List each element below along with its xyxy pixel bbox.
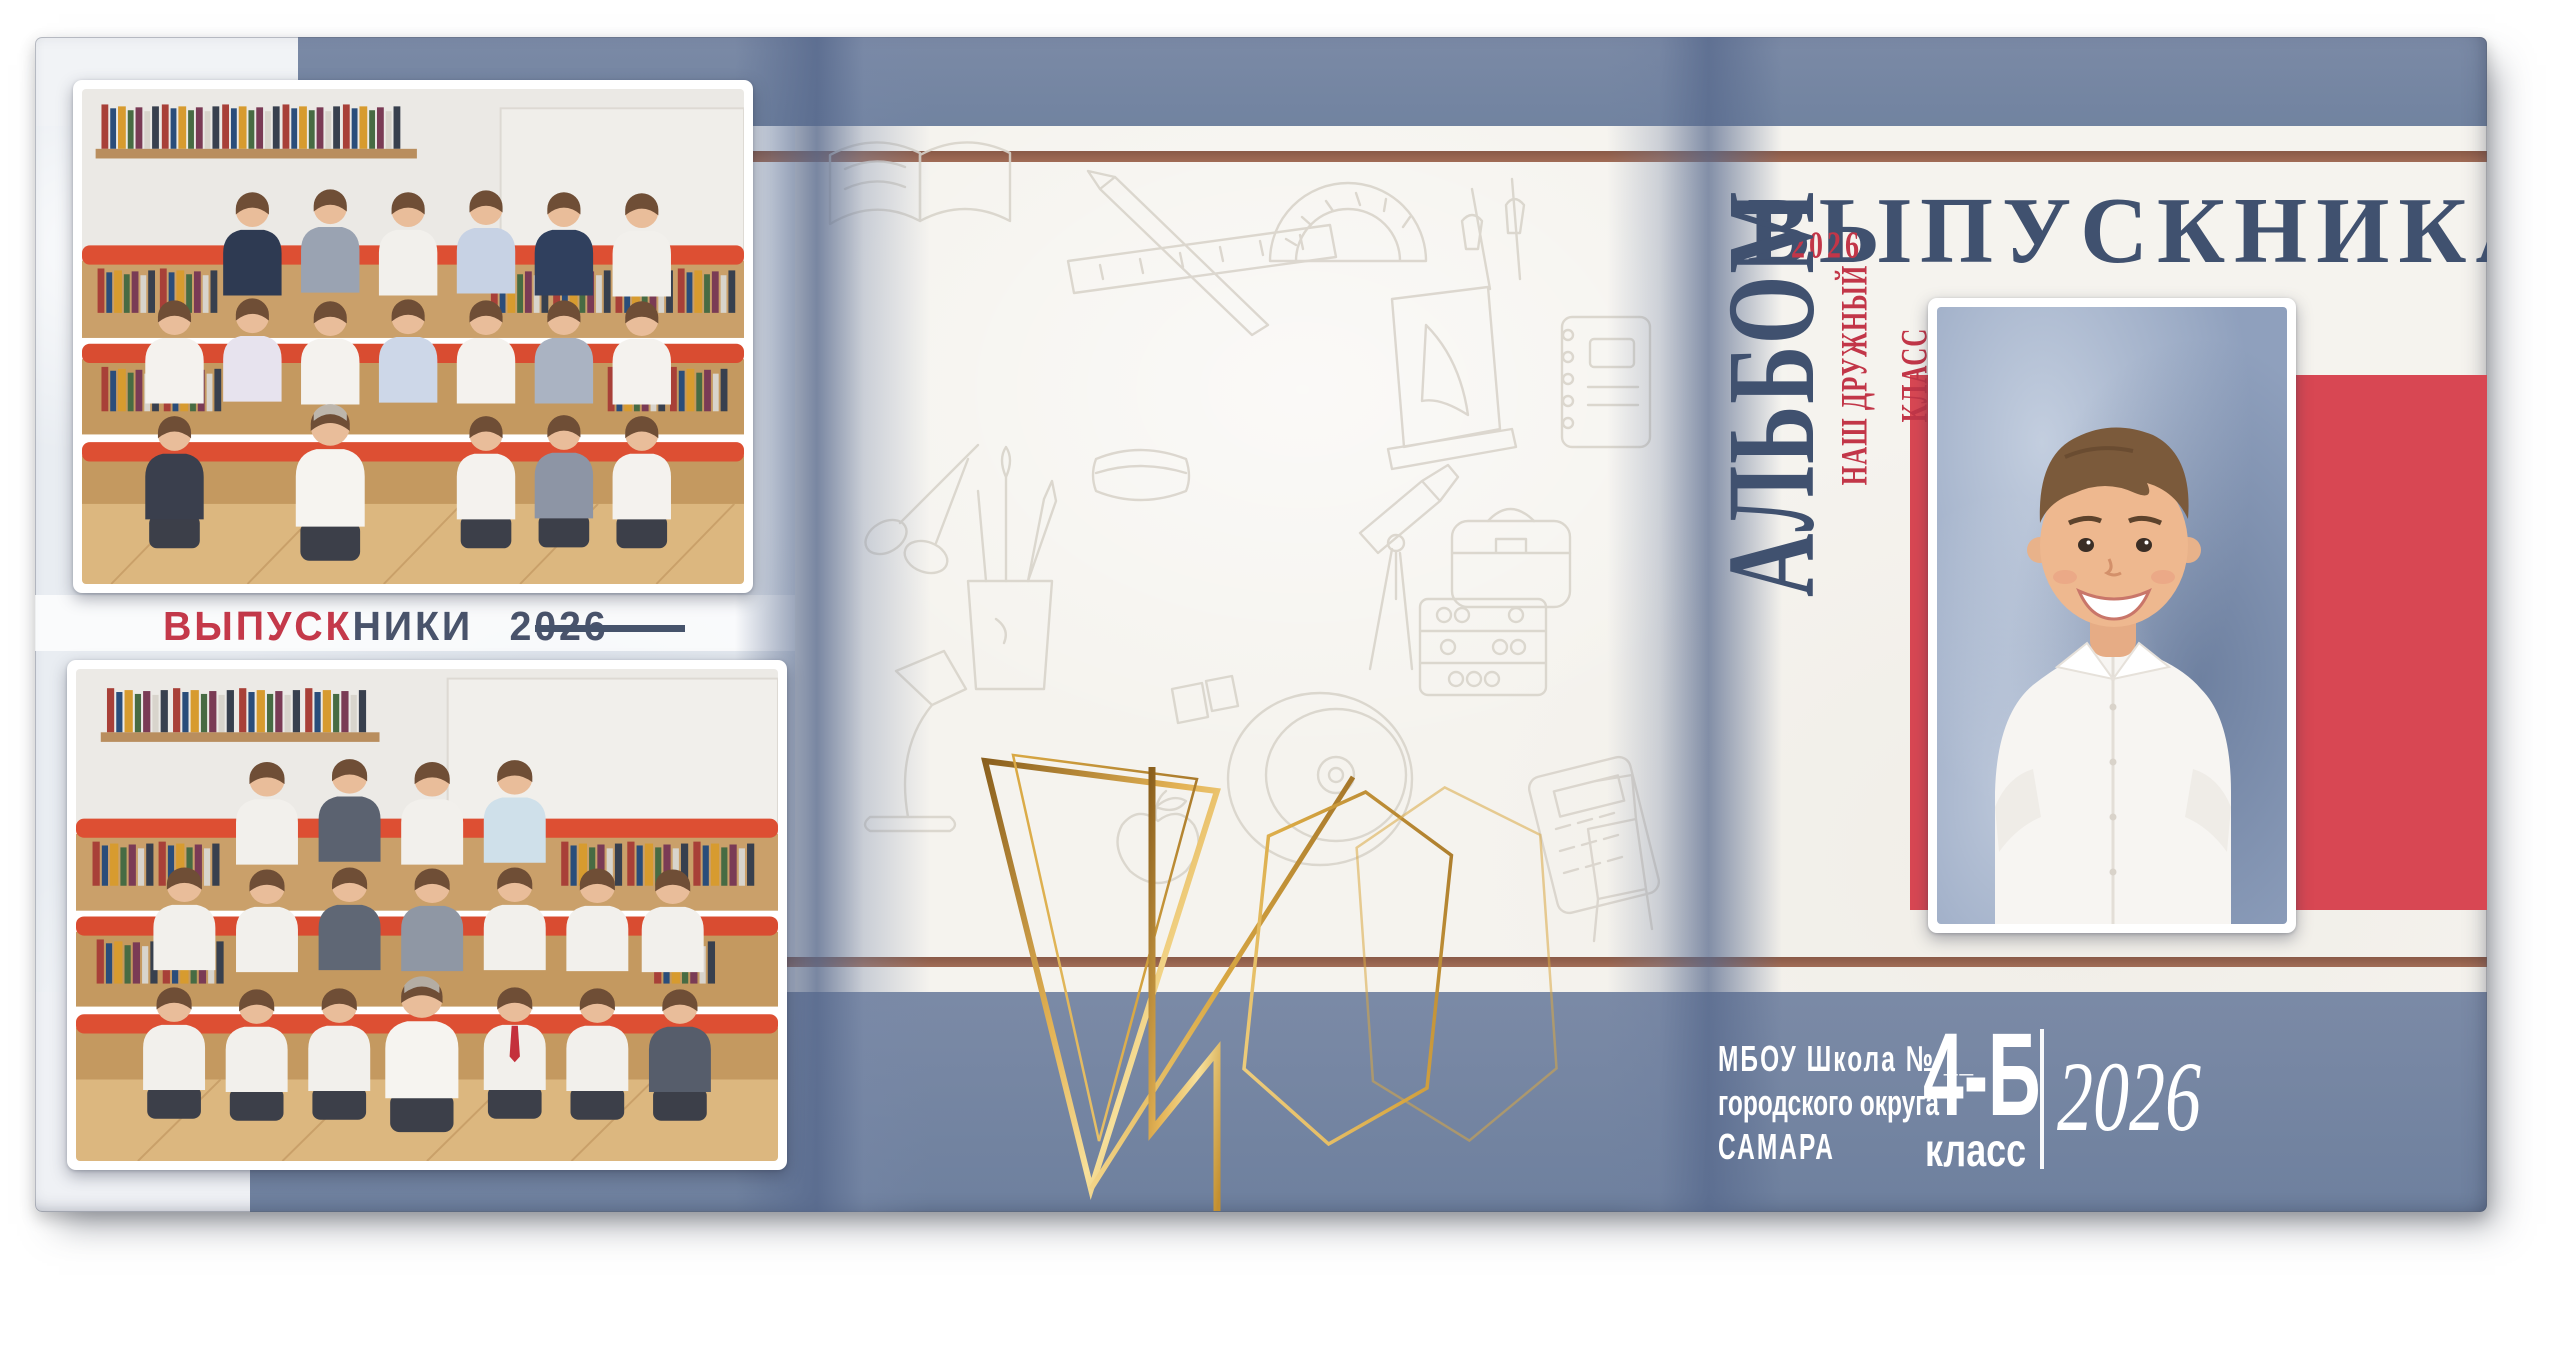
album-cover-spread: ВЫПУСКНИКИ2026: [0, 0, 2559, 1352]
student-portrait-image: [1937, 307, 2287, 924]
caption-rest: НИКИ: [352, 603, 473, 649]
gold-zigzag: [1152, 767, 1217, 1211]
class-photo-girls-image: [82, 89, 744, 584]
tagline-vertical: НАШ ДРУЖНЫЙ КЛАСС: [1826, 232, 1886, 518]
spiral-notebook-icon: [1562, 317, 1650, 447]
mini-books-icon: [1172, 676, 1238, 723]
gold-geometry: [915, 749, 1595, 1212]
class-photo-boys: [67, 660, 787, 1170]
student-portrait: [1928, 298, 2296, 933]
gold-triangle-large: [985, 761, 1217, 1189]
protractor-icon: [1270, 183, 1426, 261]
cover-page: ВЫПУСКНИКИ2026: [35, 37, 2487, 1212]
open-book-icon: [830, 142, 1010, 224]
album-word-vertical: АЛЬБОМ: [1702, 237, 1844, 597]
pencil-icon: [1088, 171, 1268, 335]
abacus-icon: [1420, 599, 1546, 695]
class-word: класс: [1925, 1123, 2026, 1177]
class-code: 4-Б: [1923, 1021, 2041, 1129]
divider-line: [2040, 1029, 2044, 1169]
gold-diagonal: [1091, 777, 1353, 1189]
caption-highlight: ВЫПУСК: [163, 603, 352, 649]
school-bag-icon: [1452, 509, 1570, 607]
eraser-icon: [1093, 450, 1189, 500]
class-photo-girls: [73, 80, 753, 593]
cover-year-large: 2026: [2057, 1039, 2201, 1154]
scissors-icon: [859, 445, 978, 579]
telescope-icon: [1360, 465, 1458, 669]
caption-rule: [535, 625, 685, 632]
pen-tools-icon: [1462, 179, 1524, 289]
brush-cup-icon: [968, 447, 1056, 689]
gold-hexagon-faint: [1353, 781, 1561, 1147]
gold-hexagon-bright: [1237, 782, 1457, 1153]
class-photo-boys-image: [76, 669, 778, 1161]
book-stand-icon: [1388, 287, 1516, 469]
